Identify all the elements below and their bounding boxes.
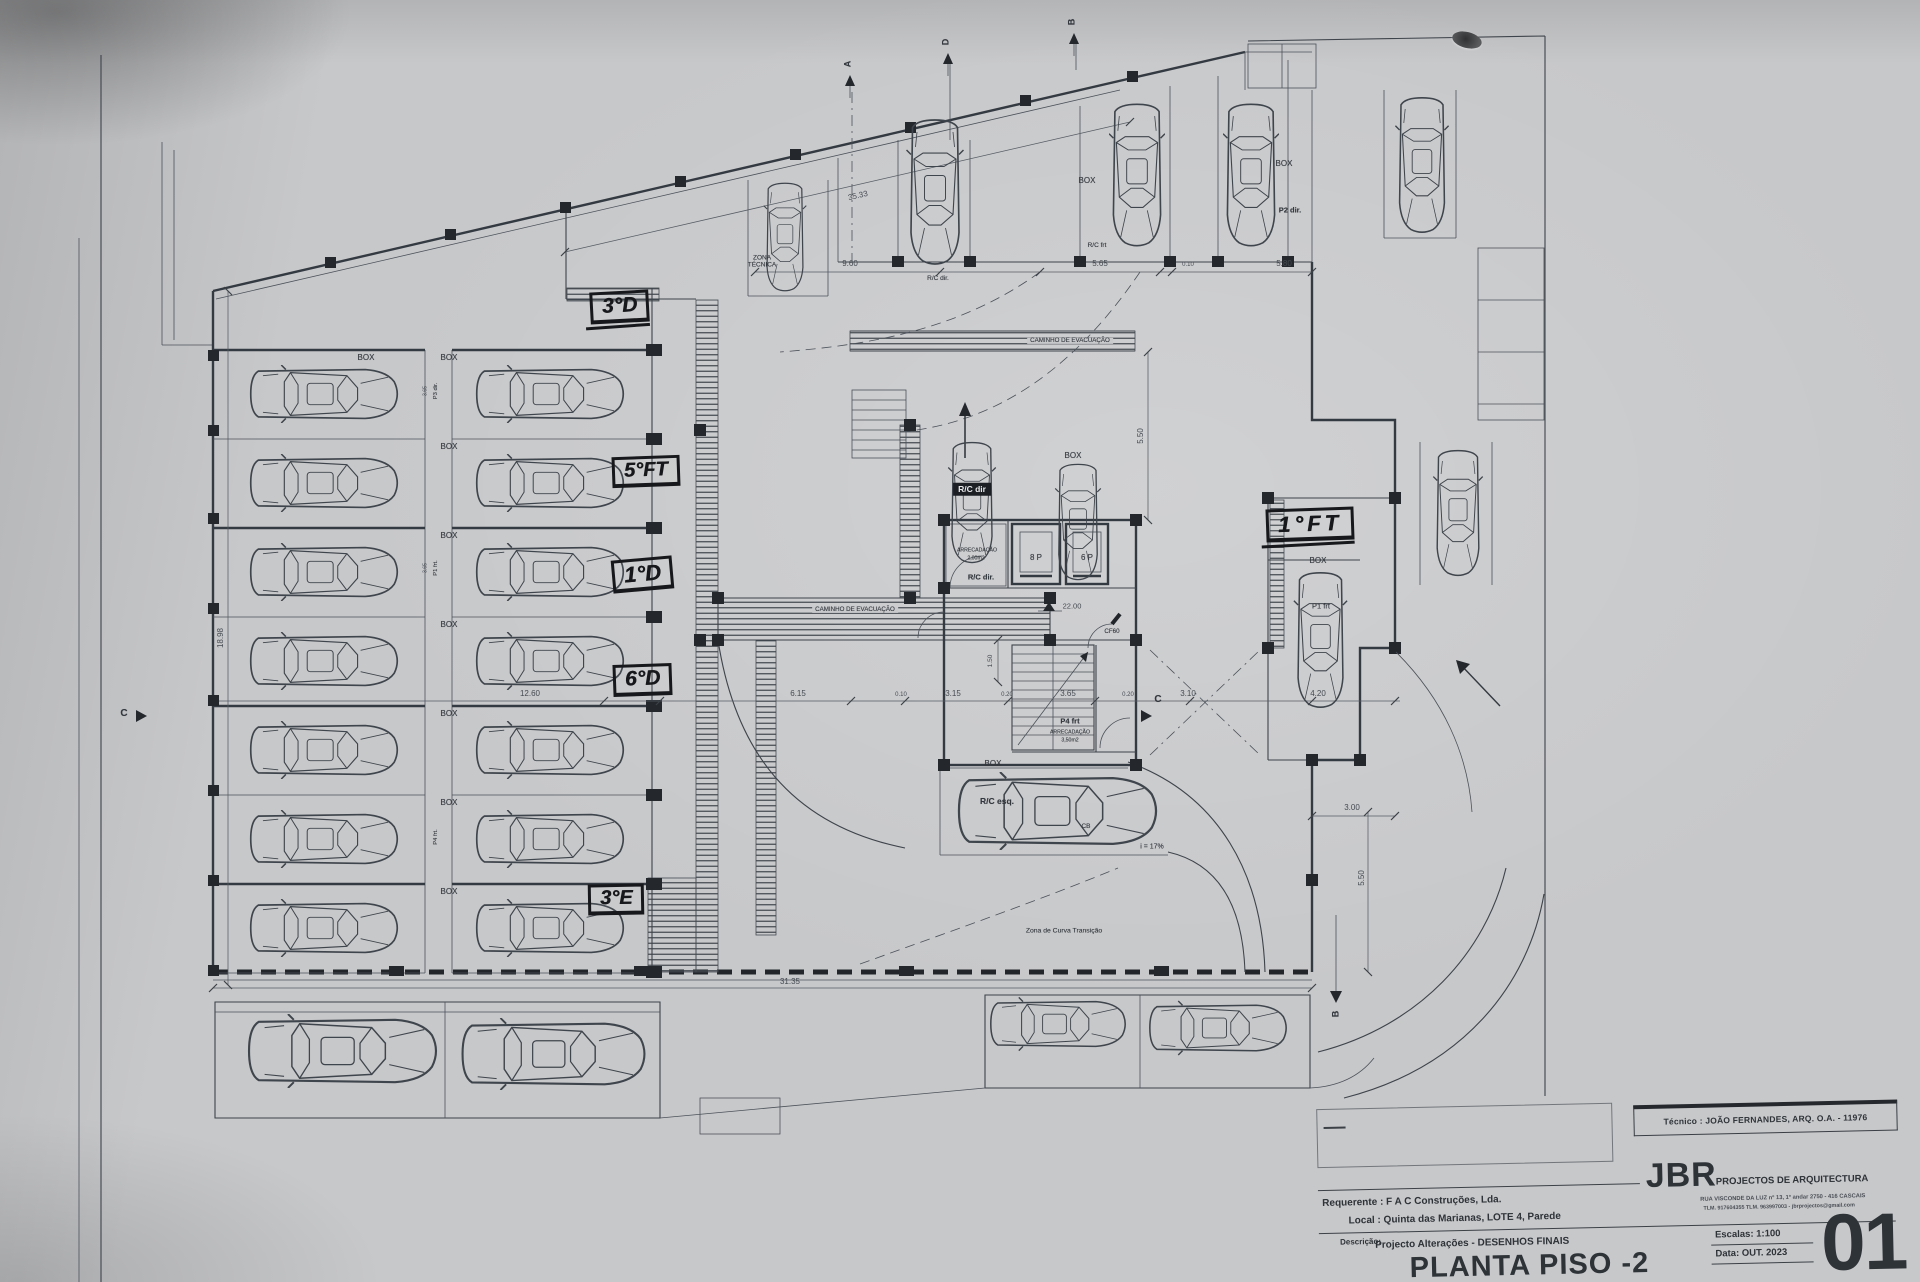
- title-block: Técnico : JOÃO FERNANDES, ARQ. O.A. - 11…: [0, 0, 1920, 1282]
- drawing-title: PLANTA PISO -2: [1409, 1249, 1649, 1282]
- brand-name: JBR: [1645, 1157, 1717, 1193]
- escalas-row: Escalas: 1:100: [1715, 1229, 1781, 1240]
- title-block-empty-field: [1316, 1103, 1613, 1168]
- data-row: Data: OUT. 2023: [1715, 1248, 1787, 1259]
- tecnico-bar: Técnico : JOÃO FERNANDES, ARQ. O.A. - 11…: [1633, 1099, 1898, 1136]
- requerente-row: Requerente : F A C Construções, Lda.: [1322, 1195, 1501, 1209]
- tecnico-text: Técnico : JOÃO FERNANDES, ARQ. O.A. - 11…: [1664, 1113, 1868, 1126]
- sheet-number: 01: [1820, 1207, 1906, 1277]
- photographed-floor-plan-sheet: ZONA TÉCNICA CAMINHO DE EVACUAÇÃO CAMINH…: [0, 0, 1920, 1282]
- brand-tagline: PROJECTOS DE ARQUITECTURA: [1716, 1174, 1869, 1187]
- local-row: Local : Quinta das Marianas, LOTE 4, Par…: [1349, 1212, 1561, 1227]
